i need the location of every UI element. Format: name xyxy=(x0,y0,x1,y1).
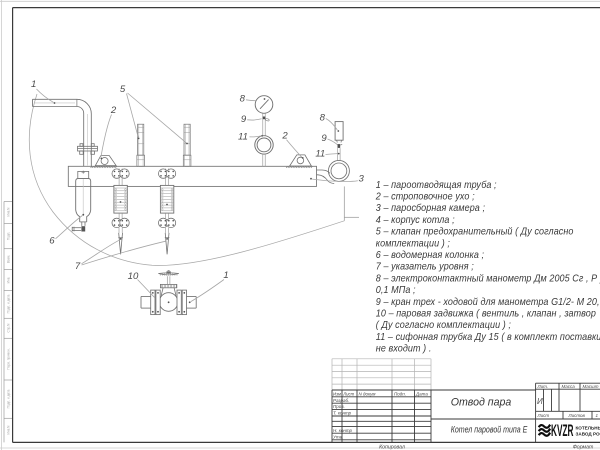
svg-text:Подп.: Подп. xyxy=(394,391,406,396)
svg-text:1: 1 xyxy=(223,270,228,281)
svg-text:Инв.N: Инв.N xyxy=(7,425,11,435)
svg-text:4 – корпус котла ;: 4 – корпус котла ; xyxy=(376,214,455,226)
svg-text:Инв.: Инв. xyxy=(7,277,11,284)
svg-text:Масса: Масса xyxy=(562,384,576,389)
svg-text:ЗАВОД РОСС: ЗАВОД РОСС xyxy=(576,432,600,437)
svg-text:Разраб.: Разраб. xyxy=(333,398,349,403)
svg-text:Формат: Формат xyxy=(573,444,594,450)
svg-text:7 – указатель уровня ;: 7 – указатель уровня ; xyxy=(376,261,474,273)
svg-text:КОТЕЛЬНЫЙ: КОТЕЛЬНЫЙ xyxy=(576,423,600,430)
svg-text:9: 9 xyxy=(321,133,327,144)
svg-text:0,1 МПа ;: 0,1 МПа ; xyxy=(376,285,416,297)
svg-text:10: 10 xyxy=(128,271,139,282)
svg-text:Изм: Изм xyxy=(333,391,341,396)
svg-text:8 – электроконтактный манометр: 8 – электроконтактный манометр Дм 2005 С… xyxy=(376,273,600,285)
svg-text:Н. контр: Н. контр xyxy=(333,428,353,433)
svg-text:Подп. и дата: Подп. и дата xyxy=(7,389,11,408)
svg-text:Инв.N: Инв.N xyxy=(7,207,11,217)
svg-text:3: 3 xyxy=(359,174,365,185)
svg-text:N докум: N докум xyxy=(359,391,376,396)
svg-text:И: И xyxy=(537,397,543,406)
svg-text:Взам.: Взам. xyxy=(7,255,11,264)
svg-text:1 – пароотводящая труба ;: 1 – пароотводящая труба ; xyxy=(376,179,497,191)
svg-text:Подп. и дата: Подп. и дата xyxy=(7,294,11,313)
svg-text:Отвод пара: Отвод пара xyxy=(451,397,512,409)
svg-text:8: 8 xyxy=(240,94,246,105)
svg-text:Пров.: Пров. xyxy=(333,404,345,409)
svg-text:7: 7 xyxy=(75,261,81,272)
svg-text:11 – сифонная трубка Ду 15 (: 11 – сифонная трубка Ду 15 ( в комплект … xyxy=(376,331,600,343)
svg-text:6: 6 xyxy=(49,235,55,246)
svg-text:( Ду согласно комплектации ) ;: ( Ду согласно комплектации ) ; xyxy=(376,320,511,332)
svg-text:Копировал: Копировал xyxy=(379,444,405,450)
svg-text:8: 8 xyxy=(320,113,326,124)
svg-text:1: 1 xyxy=(31,79,36,90)
svg-text:2 – строповочное ухо ;: 2 – строповочное ухо ; xyxy=(375,191,475,203)
svg-text:Дата: Дата xyxy=(415,391,428,396)
svg-text:10 – паровая задвижка ( вент: 10 – паровая задвижка ( вентиль , клапан… xyxy=(376,308,596,320)
svg-text:9: 9 xyxy=(241,114,247,125)
svg-text:Котел паровой типа Е: Котел паровой типа Е xyxy=(451,425,528,435)
svg-text:Листов: Листов xyxy=(568,413,586,418)
svg-text:2: 2 xyxy=(281,130,288,141)
svg-text:не входит ) .: не входит ) . xyxy=(376,343,432,355)
svg-text:5: 5 xyxy=(120,84,126,95)
svg-text:Утв.: Утв. xyxy=(333,434,343,439)
svg-text:5 – клапан предохранительный: 5 – клапан предохранительный ( Ду соглас… xyxy=(376,226,574,238)
svg-text:11: 11 xyxy=(315,148,325,159)
svg-text:Масшт: Масшт xyxy=(583,384,599,389)
svg-text:Лит.: Лит. xyxy=(537,384,549,389)
svg-text:11: 11 xyxy=(238,131,248,142)
svg-text:Т. контр: Т. контр xyxy=(333,411,352,416)
svg-text:6 – водомерная колонка ;: 6 – водомерная колонка ; xyxy=(376,250,485,262)
svg-text:2: 2 xyxy=(110,105,117,116)
svg-text:Подп.: Подп. xyxy=(7,232,11,241)
svg-text:Лист: Лист xyxy=(537,413,550,418)
svg-text:комплектации ) ;: комплектации ) ; xyxy=(376,238,450,250)
svg-text:Перв. примен.: Перв. примен. xyxy=(7,348,11,369)
svg-text:Спр.N: Спр.N xyxy=(7,323,11,333)
svg-text:KVZR: KVZR xyxy=(551,422,574,440)
svg-text:3 – паросборная камера ;: 3 – паросборная камера ; xyxy=(376,203,486,215)
svg-text:9 – кран трех - ходовой для м: 9 – кран трех - ходовой для манометра G1… xyxy=(376,296,600,308)
svg-text:Лист: Лист xyxy=(342,391,354,396)
